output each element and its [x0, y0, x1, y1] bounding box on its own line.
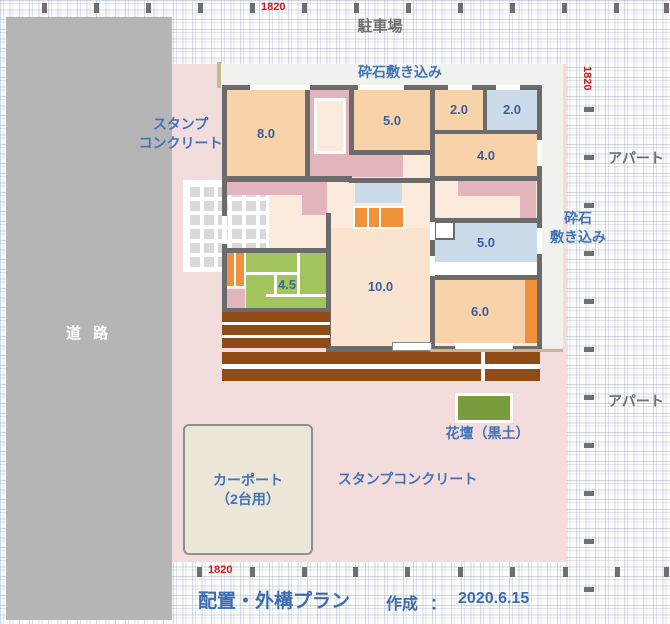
window-gap	[250, 85, 310, 90]
room-6-side-strip	[525, 280, 537, 343]
ruler-tick	[198, 3, 203, 13]
ruler-tick	[563, 567, 568, 577]
room-10-size: 10.0	[368, 279, 393, 294]
road-label: 道 路	[6, 322, 172, 343]
room-4: 4.0	[435, 134, 537, 176]
ruler-tick	[250, 3, 255, 13]
site-plan-canvas: 1820 1820 1820 道 路 8.0 5.0 2.0 2.0 4.0 1…	[0, 0, 670, 624]
staircase-inner	[314, 98, 346, 154]
fence-segment-right	[430, 349, 563, 352]
tatami-mat-line	[266, 294, 326, 297]
entrance-door-gap	[222, 216, 227, 244]
kitchen-appliance-row	[353, 206, 405, 229]
ruler-tick	[302, 3, 307, 13]
ruler-tick	[584, 203, 594, 208]
dimension-bottom-label: 1820	[208, 564, 232, 577]
kitchen-counter	[355, 183, 402, 203]
wall-segment	[430, 176, 542, 181]
kitchen-closet	[352, 155, 403, 177]
ruler-tick	[354, 3, 359, 13]
door-gap	[430, 256, 435, 276]
room-6: 6.0	[435, 280, 525, 343]
ruler-tick	[510, 3, 515, 13]
dimension-right-label: 1820	[580, 66, 593, 90]
ruler-tick	[584, 395, 594, 400]
window-gap	[537, 140, 542, 166]
wall-segment	[349, 150, 432, 155]
ruler-tick	[353, 567, 358, 577]
entry-closet-band	[227, 182, 302, 195]
room-4-5-size: 4.5	[278, 277, 296, 292]
ruler-tick	[584, 155, 594, 160]
stamp-left-line2: コンクリート	[128, 134, 233, 153]
ruler-tick	[584, 347, 594, 352]
creation-date-label: 作成	[386, 590, 418, 614]
window-gap	[448, 85, 472, 90]
ruler-tick	[615, 567, 620, 577]
ruler-tick	[584, 539, 594, 544]
carport: カーポート （2台用）	[183, 424, 313, 555]
tatami-side-backing	[224, 251, 246, 288]
ruler-tick	[584, 251, 594, 256]
appliance-block	[381, 208, 403, 227]
room-2-right-size: 2.0	[503, 102, 521, 117]
ruler-tick	[94, 3, 99, 13]
wall-segment	[483, 85, 487, 132]
ruler-tick	[664, 567, 669, 577]
ruler-tick	[458, 567, 463, 577]
wall-segment	[222, 248, 330, 253]
deck-gap	[481, 352, 485, 381]
ruler-tick	[405, 567, 410, 577]
room-2-right: 2.0	[487, 89, 537, 130]
room-2-left: 2.0	[435, 89, 483, 130]
entry-closet	[302, 180, 327, 215]
wood-deck-left	[222, 312, 330, 348]
room-5-lower-size: 5.0	[477, 235, 495, 250]
ruler-tick	[614, 3, 619, 13]
kitchen-counter-side	[520, 181, 536, 218]
ruler-tick	[197, 567, 202, 577]
ruler-tick	[146, 3, 151, 13]
ruler-tick	[510, 567, 515, 577]
gravel-right-label: 砕石 敷き込み	[540, 209, 616, 247]
creation-date: 作成 ： 2020.6.15	[386, 590, 529, 614]
room-4-5-tatami: 4.5	[246, 252, 326, 310]
wall-segment	[430, 218, 542, 223]
staircase-block	[308, 90, 352, 182]
ruler-tick	[584, 587, 594, 592]
ruler-tick	[584, 443, 594, 448]
carport-label-line1: カーポート	[213, 471, 283, 490]
dimension-top-label: 1820	[261, 1, 285, 14]
ruler-tick	[562, 3, 567, 13]
wood-deck-bottom	[222, 352, 540, 381]
window-gap	[358, 85, 404, 90]
room-8-size: 8.0	[257, 126, 275, 141]
gravel-strip-right	[540, 64, 563, 348]
window-sill-band	[435, 262, 537, 275]
room-5-upper-size: 5.0	[383, 113, 401, 128]
room-8: 8.0	[227, 90, 305, 176]
fence-segment-top	[217, 62, 221, 88]
gravel-top-label: 砕石敷き込み	[340, 63, 460, 82]
ruler-tick	[458, 3, 463, 13]
door-gap	[430, 222, 435, 240]
room-5-upper: 5.0	[354, 90, 430, 150]
wall-segment	[222, 176, 352, 182]
gravel-right-label-line2: 敷き込み	[540, 228, 616, 247]
ruler-tick	[584, 299, 594, 304]
ruler-tick	[664, 3, 669, 13]
flowerbed	[455, 393, 513, 423]
window-sill	[392, 342, 432, 351]
wall-segment	[305, 85, 310, 178]
appliance-block	[369, 208, 379, 227]
ruler-tick	[406, 3, 411, 13]
tatami-mat-line	[297, 252, 300, 296]
tatami-side-strip	[236, 253, 244, 286]
ruler-tick	[250, 567, 255, 577]
gravel-right-label-line1: 砕石	[540, 209, 616, 228]
room-10: 10.0	[331, 228, 430, 345]
apartment-label-bottom: アパート	[605, 392, 667, 410]
road-area: 道 路	[6, 17, 172, 620]
creation-date-value: 2020.6.15	[458, 590, 529, 614]
apartment-label-top: アパート	[605, 149, 667, 167]
room-2-left-size: 2.0	[450, 102, 468, 117]
stamp-left-line1: スタンプ	[128, 115, 233, 134]
tatami-mat-line	[246, 272, 300, 275]
parking-label: 駐車場	[340, 18, 420, 36]
wall-segment	[349, 178, 435, 183]
tatami-mat-line	[274, 274, 277, 295]
flowerbed-label: 花壇（黒土）	[430, 424, 545, 443]
ruler-tick	[302, 567, 307, 577]
appliance-block	[355, 208, 367, 227]
tatami-corner-closet	[225, 289, 245, 309]
plan-title: 配置・外構プラン	[198, 586, 350, 613]
stamp-concrete-left-label: スタンプ コンクリート	[128, 115, 233, 153]
creation-date-separator: ：	[430, 590, 446, 614]
ruler-tick	[584, 107, 594, 112]
ruler-tick	[584, 491, 594, 496]
window-gap	[496, 85, 520, 90]
wall-segment	[349, 85, 354, 152]
ruler-tick	[42, 3, 47, 13]
tatami-side-strip	[226, 253, 234, 286]
wall-segment	[430, 275, 542, 280]
room-4-size: 4.0	[477, 148, 495, 163]
stamp-concrete-bottom-label: スタンプコンクリート	[335, 470, 480, 489]
room-6-size: 6.0	[471, 304, 489, 319]
carport-label-line2: （2台用）	[216, 490, 280, 509]
